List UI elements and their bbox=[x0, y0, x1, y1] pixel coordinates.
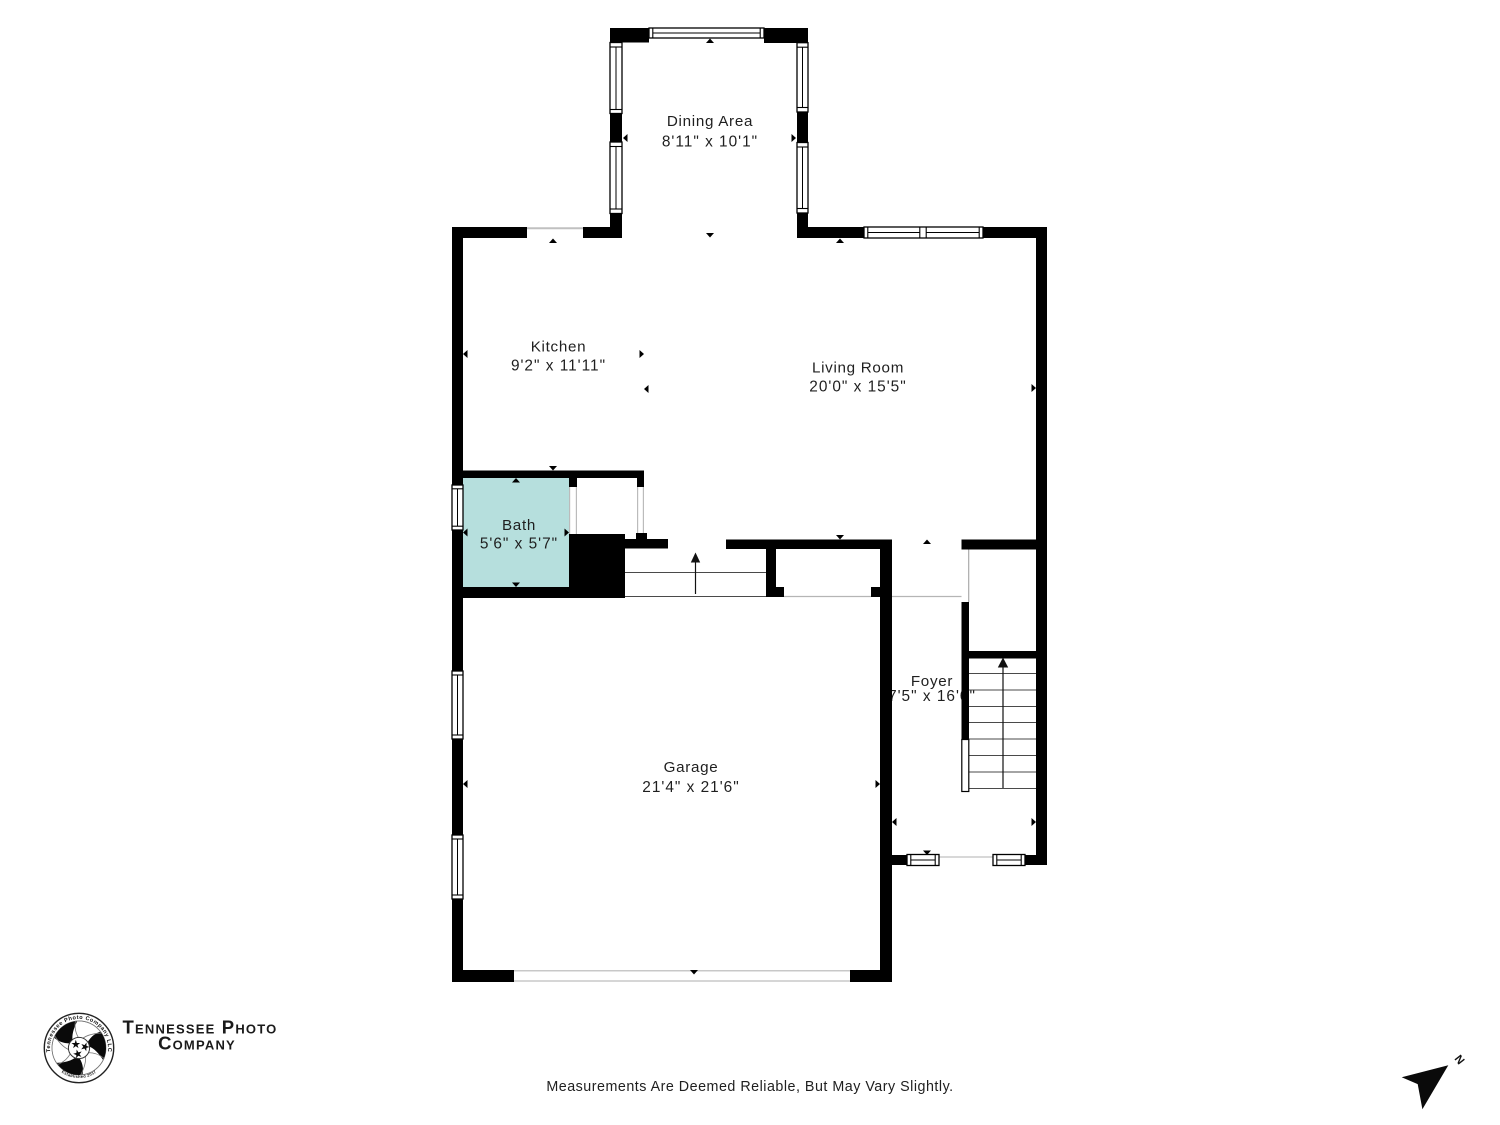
svg-text:Kitchen: Kitchen bbox=[531, 339, 587, 356]
svg-text:20'0" x 15'5": 20'0" x 15'5" bbox=[809, 379, 906, 396]
svg-text:5'6" x 5'7": 5'6" x 5'7" bbox=[480, 536, 558, 553]
svg-text:Bath: Bath bbox=[502, 517, 536, 534]
svg-text:Company: Company bbox=[158, 1033, 236, 1054]
svg-text:Garage: Garage bbox=[664, 759, 719, 776]
svg-text:Living Room: Living Room bbox=[812, 360, 904, 377]
svg-text:8'11" x 10'1": 8'11" x 10'1" bbox=[662, 134, 758, 151]
svg-text:21'4" x 21'6": 21'4" x 21'6" bbox=[642, 779, 739, 796]
svg-text:Dining Area: Dining Area bbox=[667, 113, 753, 130]
svg-text:9'2" x 11'11": 9'2" x 11'11" bbox=[511, 358, 606, 375]
svg-text:Measurements Are Deemed Reliab: Measurements Are Deemed Reliable, But Ma… bbox=[546, 1079, 953, 1095]
